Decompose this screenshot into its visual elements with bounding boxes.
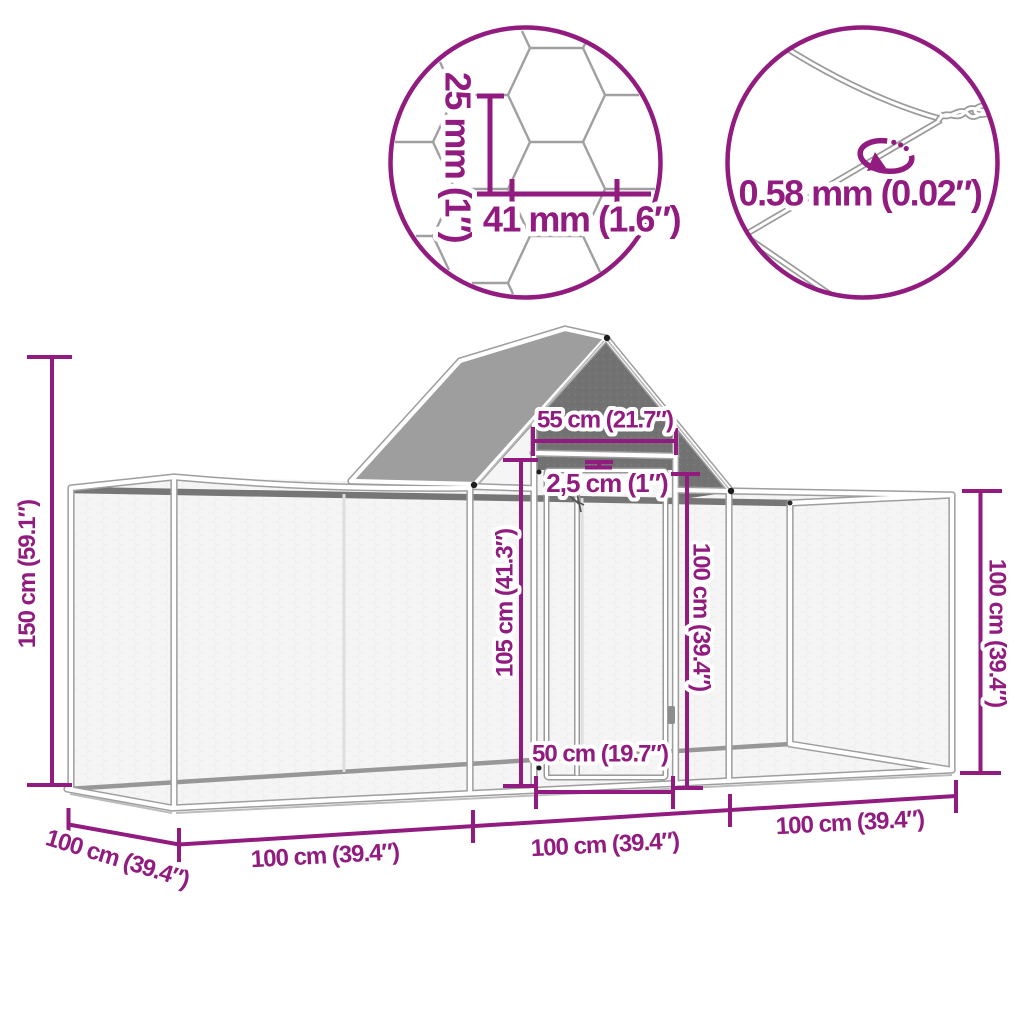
svg-text:100 cm (39.4″): 100 cm (39.4″)	[688, 543, 715, 691]
svg-text:50 cm (19.7″): 50 cm (19.7″)	[532, 740, 668, 767]
svg-text:41 mm (1.6″): 41 mm (1.6″)	[483, 199, 681, 240]
svg-text:105 cm (41.3″): 105 cm (41.3″)	[491, 529, 518, 677]
svg-text:0.58 mm (0.02″): 0.58 mm (0.02″)	[739, 173, 982, 214]
svg-text:150 cm (59.1″): 150 cm (59.1″)	[14, 500, 41, 648]
svg-text:25 mm (1″): 25 mm (1″)	[437, 72, 478, 243]
svg-text:100 cm (39.4″): 100 cm (39.4″)	[984, 559, 1011, 707]
svg-text:55 cm (21.7″): 55 cm (21.7″)	[537, 406, 673, 433]
svg-text:2,5 cm (1″): 2,5 cm (1″)	[546, 468, 668, 498]
